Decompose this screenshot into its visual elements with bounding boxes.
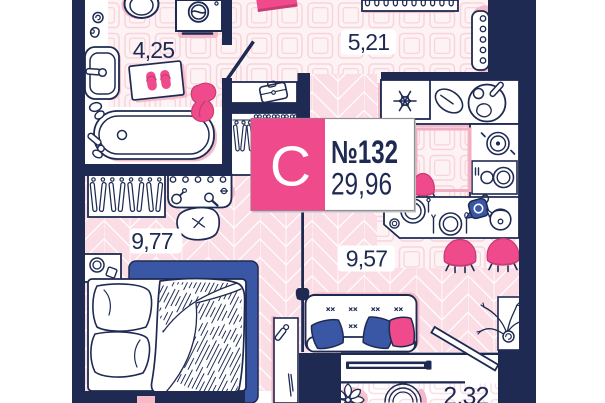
svg-text:9,57: 9,57 <box>346 246 388 272</box>
svg-text:5,21: 5,21 <box>348 29 390 55</box>
svg-text:2,32: 2,32 <box>443 383 488 403</box>
svg-text:9,77: 9,77 <box>131 228 173 254</box>
svg-text:C: C <box>270 135 311 199</box>
svg-text:29,96: 29,96 <box>331 166 392 202</box>
svg-text:4,25: 4,25 <box>133 37 175 63</box>
